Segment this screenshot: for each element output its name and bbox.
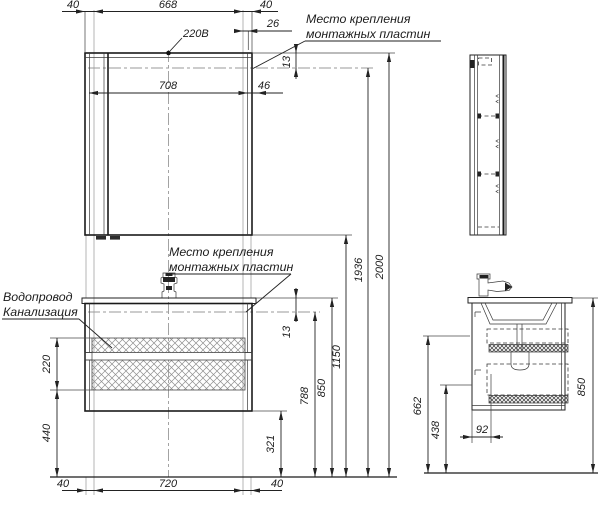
label-water-supply: Водопровод xyxy=(3,290,73,304)
faucet-front xyxy=(161,273,177,298)
counter-side xyxy=(468,298,572,304)
dim-662: 662 xyxy=(412,397,424,415)
label-power-220v: 220В xyxy=(182,28,209,40)
dim-bottom-40-right: 40 xyxy=(271,478,284,490)
basin-profile xyxy=(481,303,557,324)
power-point-220v xyxy=(166,51,171,56)
dim-1150: 1150 xyxy=(331,344,343,369)
label-sewerage: Канализация xyxy=(3,305,78,319)
door-handle-right xyxy=(110,236,120,240)
dim-top-40-left: 40 xyxy=(67,0,80,11)
dim-788: 788 xyxy=(299,386,311,405)
label-mount-mid-line1: Место крепления xyxy=(169,245,274,259)
dimensions: 40 668 40 26 708 46 13 13 220 440 321 78… xyxy=(41,0,593,491)
dim-46: 46 xyxy=(258,80,271,92)
label-mount-top-line2: монтажных пластин xyxy=(306,27,430,41)
slide-rail-upper xyxy=(489,345,568,353)
dim-top-668: 668 xyxy=(159,0,178,11)
dim-top-40-right: 40 xyxy=(260,0,273,11)
dim-708: 708 xyxy=(159,80,178,92)
dim-850-side: 850 xyxy=(576,377,588,396)
dim-26: 26 xyxy=(266,18,280,30)
drawer-lower-dashed xyxy=(487,364,568,395)
shelf-dashed-upper xyxy=(478,114,500,119)
dim-2000: 2000 xyxy=(374,254,386,280)
hinge-block xyxy=(471,60,475,68)
label-mount-top-line1: Место крепления xyxy=(306,12,411,26)
side-view-mirror-cabinet xyxy=(470,55,506,235)
drawing-canvas: 40 668 40 26 708 46 13 13 220 440 321 78… xyxy=(0,0,600,514)
door-handle-left xyxy=(96,236,106,240)
technical-drawing-sheet: 40 668 40 26 708 46 13 13 220 440 321 78… xyxy=(0,0,600,514)
drawer-upper-dashed xyxy=(487,329,568,343)
dim-850: 850 xyxy=(316,378,328,397)
dim-bottom-720: 720 xyxy=(159,478,178,490)
dim-220: 220 xyxy=(41,354,53,374)
front-view-vanity xyxy=(82,273,256,411)
slide-rail-lower xyxy=(489,396,568,404)
dim-438: 438 xyxy=(430,420,442,439)
drawer-gap xyxy=(85,353,252,361)
dim-bottom-40-left: 40 xyxy=(57,478,70,490)
siphon xyxy=(511,352,529,370)
dim-92: 92 xyxy=(476,424,488,436)
cabinet-side xyxy=(472,303,565,410)
faucet-side xyxy=(477,274,512,296)
label-mount-mid-line2: монтажных пластин xyxy=(169,260,293,274)
side-view-vanity xyxy=(468,274,572,410)
dim-1936: 1936 xyxy=(353,257,365,282)
washbasin-counter xyxy=(82,298,256,304)
plumbing-zone-hatch xyxy=(92,338,245,390)
dim-440: 440 xyxy=(41,423,53,442)
dim-13-mid: 13 xyxy=(281,325,293,338)
shelf-dashed-lower xyxy=(478,172,500,177)
dim-13-top: 13 xyxy=(281,55,293,68)
dim-321: 321 xyxy=(265,435,277,453)
